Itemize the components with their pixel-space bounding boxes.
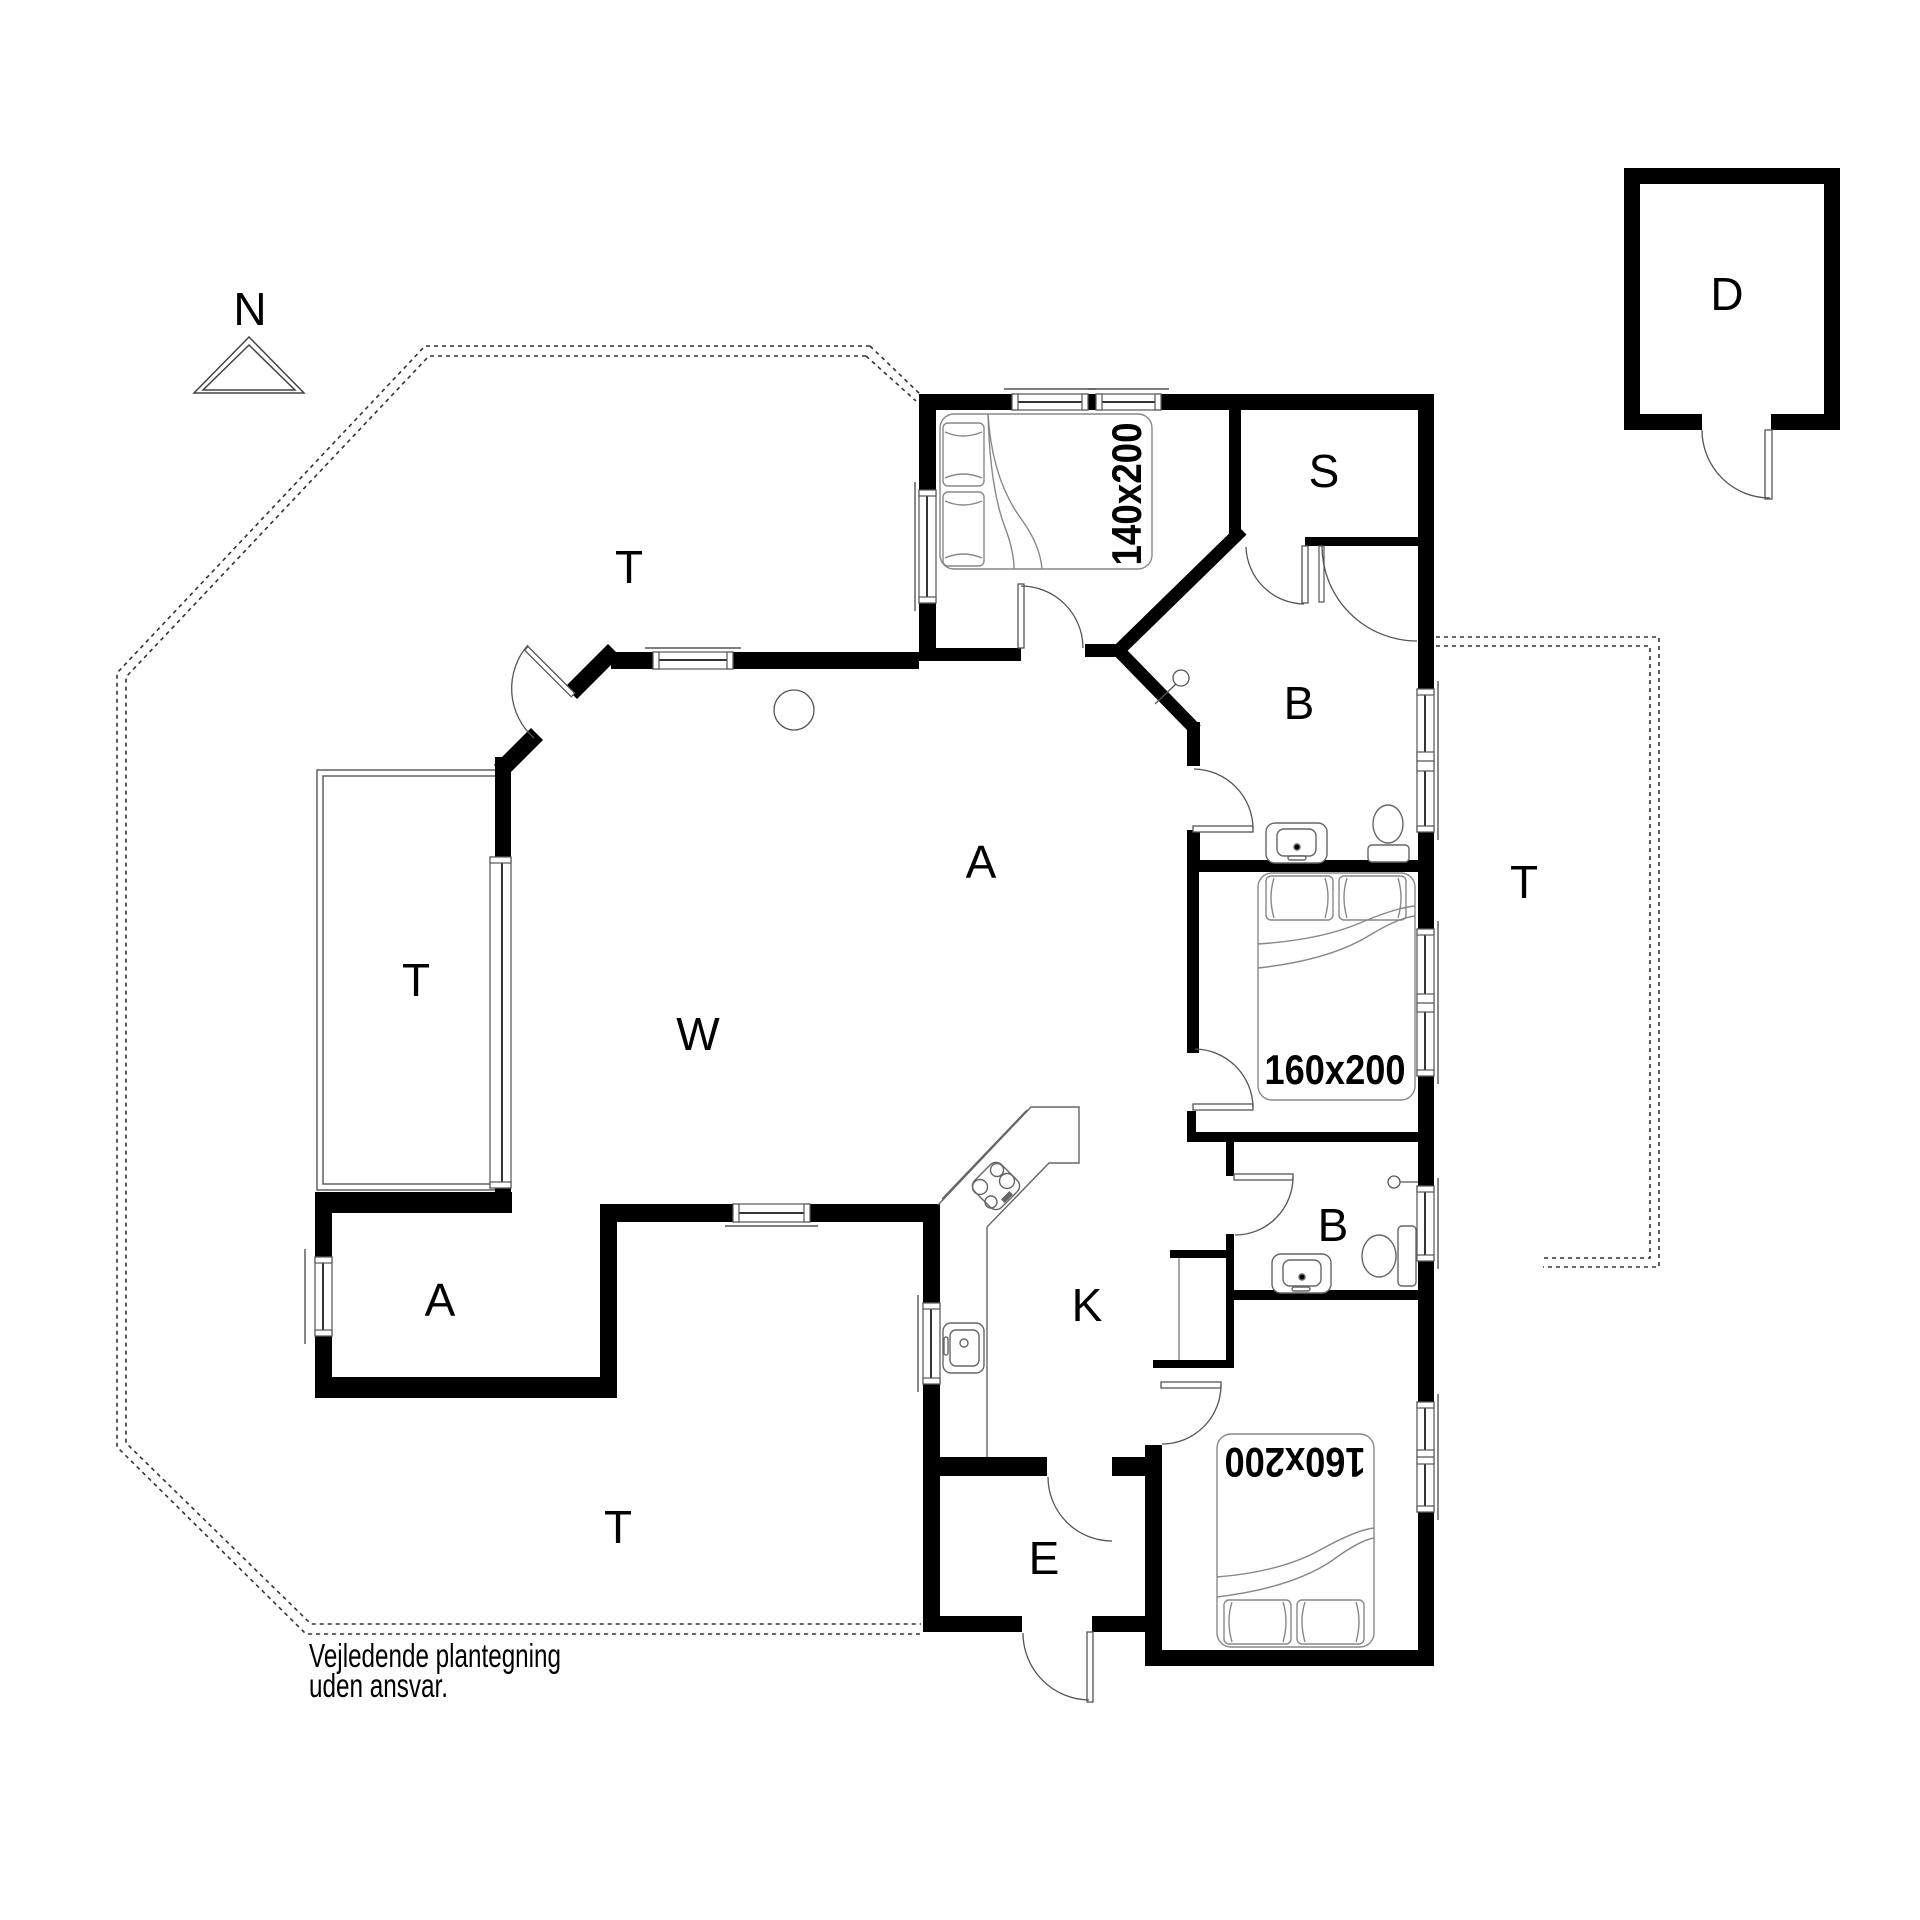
svg-text:E: E bbox=[1029, 1532, 1060, 1584]
svg-text:A: A bbox=[425, 1274, 456, 1326]
svg-text:S: S bbox=[1309, 445, 1340, 497]
svg-text:T: T bbox=[615, 541, 643, 593]
svg-text:T: T bbox=[1510, 856, 1538, 908]
svg-text:A: A bbox=[966, 836, 997, 888]
svg-text:160x200: 160x200 bbox=[1265, 1046, 1406, 1093]
svg-text:W: W bbox=[676, 1008, 720, 1060]
svg-text:uden ansvar.: uden ansvar. bbox=[309, 1667, 448, 1704]
svg-text:140x200: 140x200 bbox=[1103, 423, 1150, 566]
svg-text:N: N bbox=[233, 283, 266, 335]
svg-text:B: B bbox=[1284, 677, 1315, 729]
svg-text:T: T bbox=[402, 954, 430, 1006]
svg-text:K: K bbox=[1072, 1279, 1103, 1331]
svg-text:T: T bbox=[604, 1501, 632, 1553]
svg-text:B: B bbox=[1318, 1199, 1349, 1251]
svg-text:160x200: 160x200 bbox=[1225, 1439, 1366, 1486]
svg-text:D: D bbox=[1710, 268, 1743, 320]
